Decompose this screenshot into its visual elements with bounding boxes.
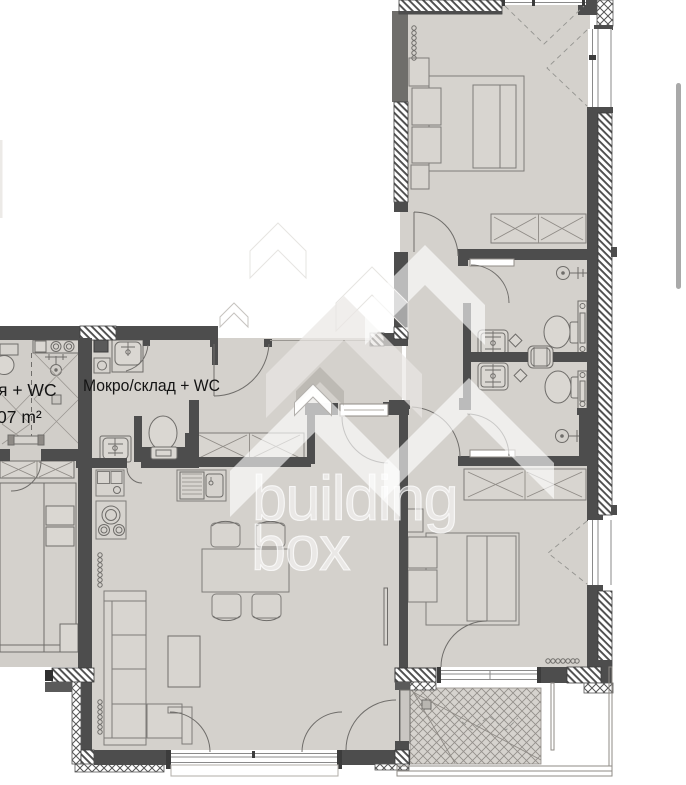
svg-text:я + WC: я + WC — [0, 380, 57, 400]
svg-text:07 m²: 07 m² — [0, 407, 42, 427]
svg-text:Мокро/склад + WC: Мокро/склад + WC — [83, 376, 220, 395]
svg-text:box: box — [251, 514, 350, 584]
